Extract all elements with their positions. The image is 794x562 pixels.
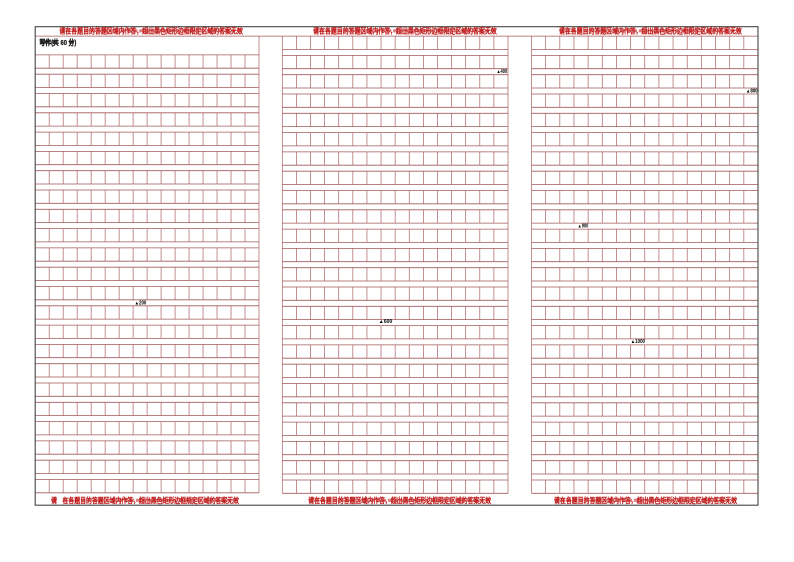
- svg-text:▲800: ▲800: [746, 88, 758, 94]
- svg-text:▲400: ▲400: [497, 69, 508, 75]
- svg-text:请: 请: [51, 496, 57, 505]
- svg-text:写作(共 60 分): 写作(共 60 分): [40, 38, 77, 47]
- svg-text:▲600: ▲600: [379, 319, 393, 325]
- svg-text:▲1000: ▲1000: [631, 339, 645, 345]
- svg-text:▲900: ▲900: [578, 223, 589, 229]
- svg-text:请在各题目的答题区域内作答，超出黑色矩形边框限定区域的答案无: 请在各题目的答题区域内作答，超出黑色矩形边框限定区域的答案无效: [313, 27, 497, 36]
- svg-text:请在各题目的答题区域内作答，超出黑色矩形边框限定区域的答案无: 请在各题目的答题区域内作答，超出黑色矩形边框限定区域的答案无效: [554, 496, 738, 505]
- svg-text:请在各题目的答题区域内作答，超出黑色矩形边框限定区域的答案无: 请在各题目的答题区域内作答，超出黑色矩形边框限定区域的答案无效: [308, 496, 492, 505]
- svg-text:▲200: ▲200: [135, 300, 147, 306]
- svg-text:请在各题目的答题区域内作答，超出黑色矩形边框限定区域的答案无: 请在各题目的答题区域内作答，超出黑色矩形边框限定区域的答案无效: [559, 27, 742, 36]
- svg-text:请在各题目的答题区域内作答，超出黑色矩形边框限定区域的答案无: 请在各题目的答题区域内作答，超出黑色矩形边框限定区域的答案无效: [59, 27, 243, 36]
- svg-text:在各题目的答题区域内作答，超出黑色矩形边框规定区域的答案无效: 在各题目的答题区域内作答，超出黑色矩形边框规定区域的答案无效: [63, 496, 240, 505]
